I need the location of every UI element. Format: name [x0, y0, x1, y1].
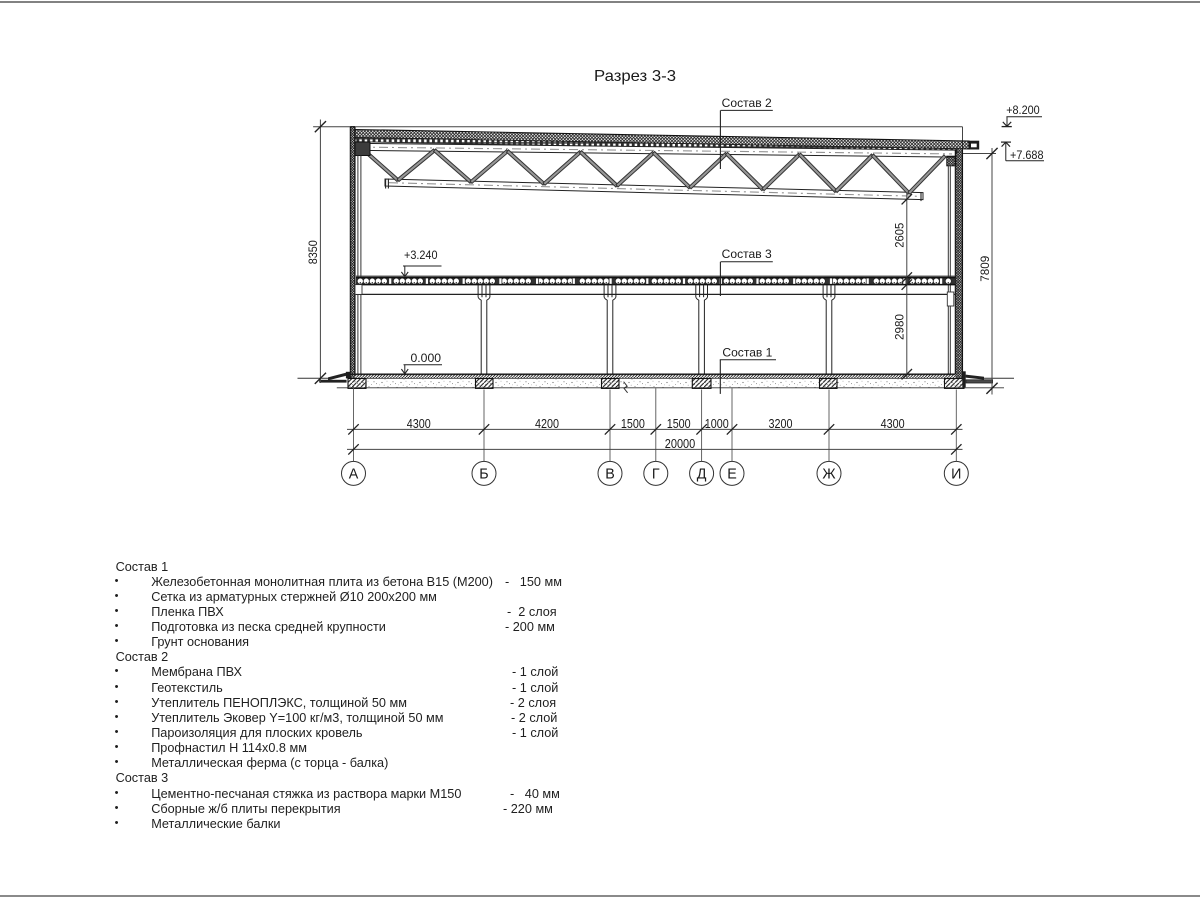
svg-text:+3.240: +3.240	[404, 250, 438, 262]
svg-text:1500: 1500	[621, 416, 645, 431]
svg-text:Д: Д	[697, 467, 707, 483]
svg-text:3200: 3200	[769, 416, 793, 431]
svg-text:А: А	[349, 467, 359, 483]
svg-text:20000: 20000	[665, 436, 696, 451]
svg-text:7809: 7809	[978, 255, 992, 281]
svg-text:2605: 2605	[893, 223, 907, 248]
svg-text:2980: 2980	[893, 314, 907, 340]
svg-text:Б: Б	[479, 467, 488, 483]
svg-text:Е: Е	[727, 467, 737, 483]
svg-text:1000: 1000	[705, 416, 729, 431]
svg-text:В: В	[605, 467, 615, 483]
svg-text:+8.200: +8.200	[1006, 105, 1039, 117]
svg-text:4300: 4300	[881, 416, 905, 431]
svg-text:1500: 1500	[667, 416, 691, 431]
svg-text:4300: 4300	[407, 416, 431, 431]
svg-text:Г: Г	[652, 467, 660, 483]
svg-text:Состав 2: Состав 2	[722, 96, 772, 110]
svg-text:И: И	[951, 467, 961, 483]
svg-text:Состав 1: Состав 1	[722, 345, 772, 359]
svg-text:4200: 4200	[535, 416, 559, 431]
svg-text:8350: 8350	[306, 240, 320, 264]
svg-text:+7.688: +7.688	[1010, 150, 1044, 162]
svg-text:Разрез 3-3: Разрез 3-3	[594, 68, 676, 85]
svg-text:0.000: 0.000	[411, 353, 442, 365]
svg-text:Состав 3: Состав 3	[722, 247, 772, 261]
svg-text:Ж: Ж	[822, 467, 835, 483]
